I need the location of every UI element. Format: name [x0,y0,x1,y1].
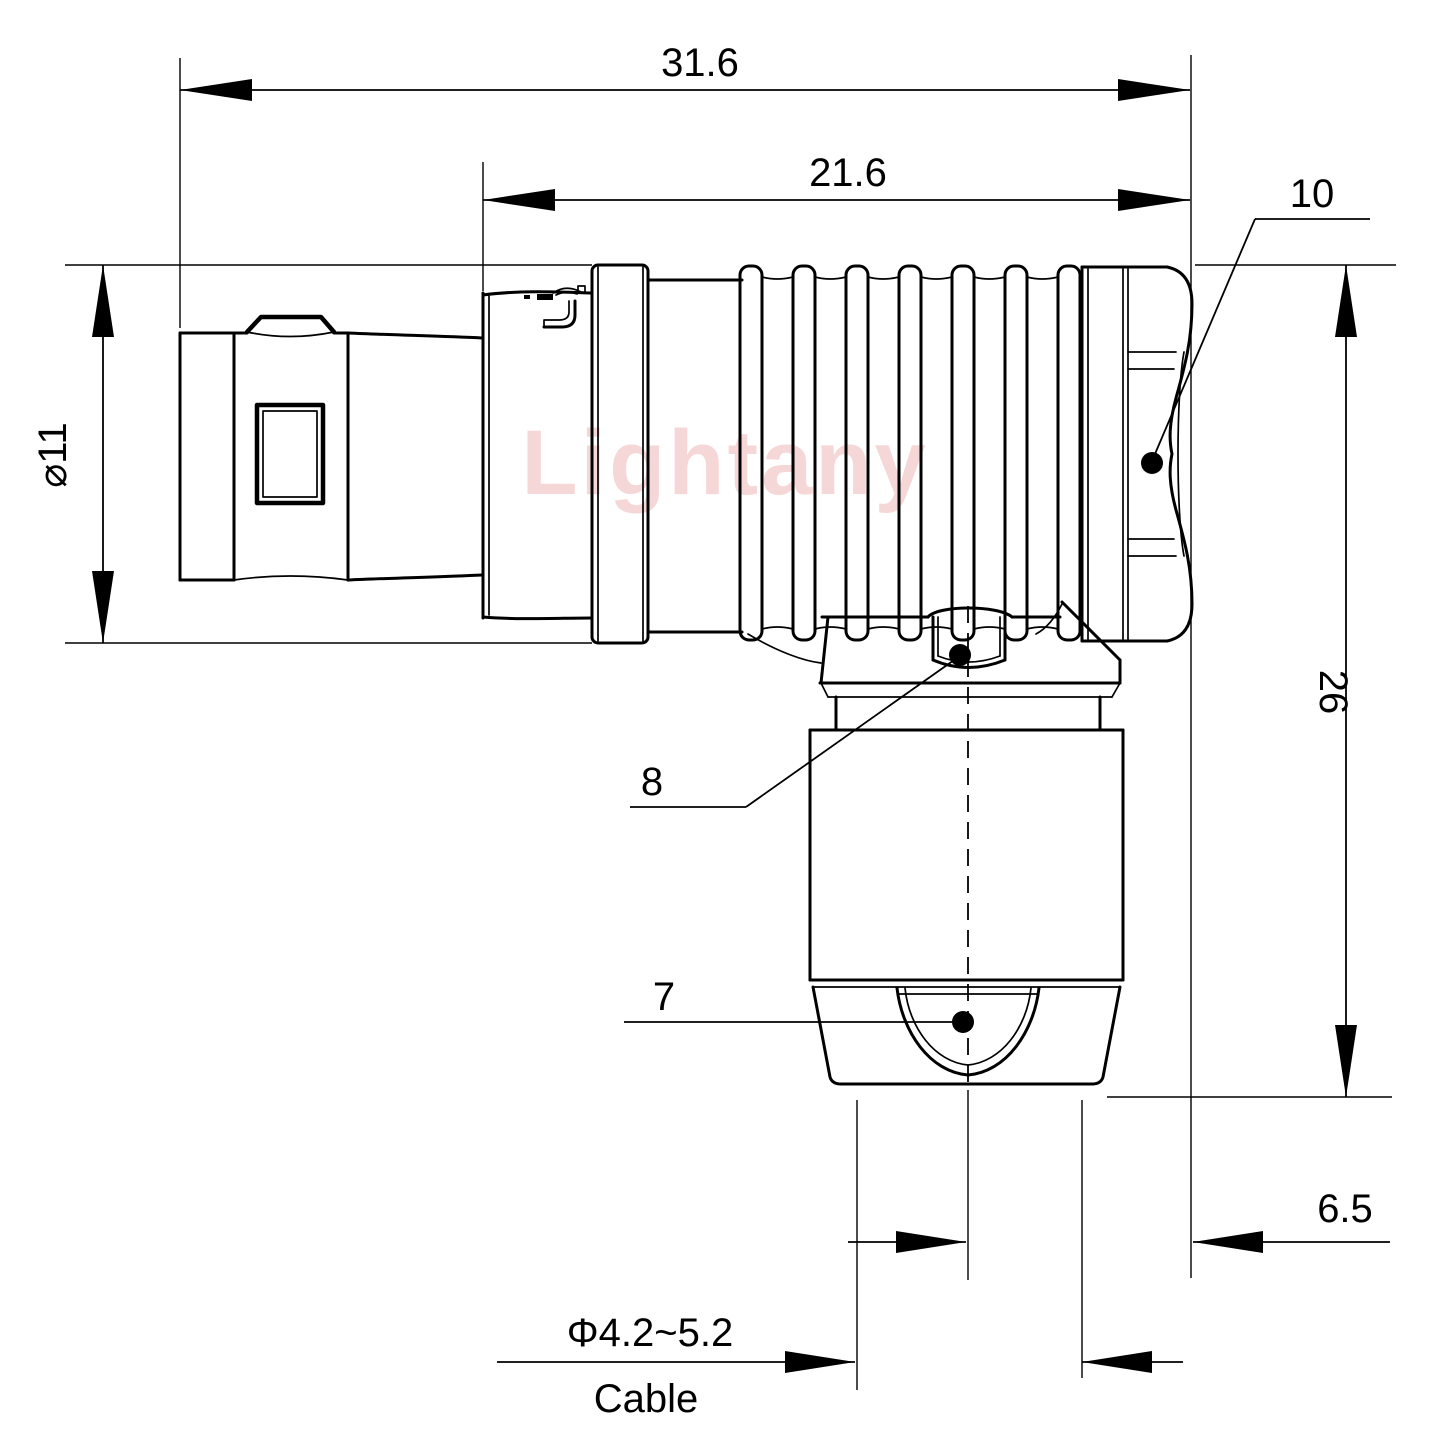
dim-overall-length-label: 31.6 [661,41,739,85]
arrowhead-left [483,189,555,211]
balloon-coupling-nut-label: 10 [1290,172,1335,216]
leader-dot [952,1011,974,1033]
arrowhead-bottom [1335,1025,1357,1097]
dim-front-length: 21.6 [483,151,1190,211]
latch-bump [247,317,334,332]
dim-axis-offset: 6.5 [848,1187,1390,1253]
arrowhead-left [785,1351,855,1373]
dim-cable-diameter: Φ4.2~5.2 Cable [497,1311,1183,1421]
balloon-cable-bushing: 7 [624,975,974,1033]
arrowhead-right [1118,79,1190,101]
connector-nose [180,317,482,580]
arrowhead-right [1118,189,1190,211]
arrowhead-left [180,79,252,101]
dim-elbow-height: 26 [1311,265,1357,1097]
arrowhead-right [1082,1351,1152,1373]
dim-front-length-label: 21.6 [809,151,887,195]
balloon-elbow-hex-nut: 8 [630,644,971,807]
extension-lines [65,55,1396,1390]
lower-body [810,697,1123,987]
arrowhead-bottom [92,571,114,643]
dim-cable-diameter-label: Φ4.2~5.2 [567,1311,733,1355]
dim-overall-length: 31.6 [180,41,1190,101]
balloon-coupling-nut: 10 [1141,172,1370,474]
grip-rib [1005,266,1027,640]
connector-drawing-svg: Lightany 31.6 21.6 ⌀11 26 [0,0,1440,1440]
cable-bushing-cap [813,987,1120,1084]
arrowhead-top [92,265,114,337]
dim-elbow-height-label: 26 [1311,670,1355,715]
technical-drawing-canvas: Lightany 31.6 21.6 ⌀11 26 [0,0,1440,1440]
elbow-hex-nut [748,602,1120,697]
coupling-nut [1082,267,1192,641]
balloon-elbow-hex-nut-label: 8 [641,760,663,804]
arrowhead-left [896,1231,966,1253]
leader-dot [949,644,971,666]
key-window [257,405,323,503]
arrowhead-right [1193,1231,1263,1253]
dim-shell-diameter-label: ⌀11 [31,422,75,488]
dim-shell-diameter: ⌀11 [31,265,114,643]
arrowhead-top [1335,265,1357,337]
grip-rib [1058,266,1080,640]
dim-axis-offset-label: 6.5 [1317,1187,1373,1231]
leader-dot [1141,452,1163,474]
grip-rib [952,266,974,640]
balloon-cable-bushing-label: 7 [653,975,675,1019]
dim-cable-text-label: Cable [594,1377,699,1421]
